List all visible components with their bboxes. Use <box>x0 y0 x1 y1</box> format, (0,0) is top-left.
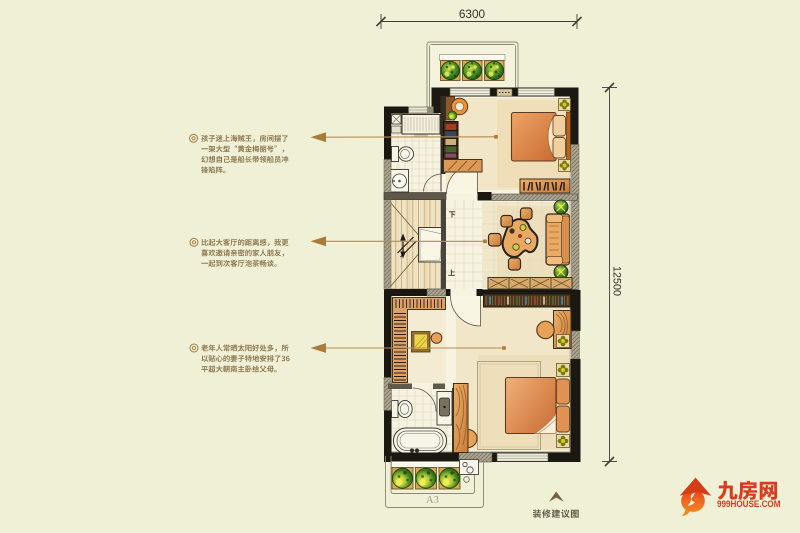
svg-text:6300: 6300 <box>459 7 486 21</box>
svg-text:A3: A3 <box>426 495 439 506</box>
svg-text:12500: 12500 <box>611 266 623 296</box>
svg-text:999HOUSE.COM: 999HOUSE.COM <box>717 499 781 509</box>
